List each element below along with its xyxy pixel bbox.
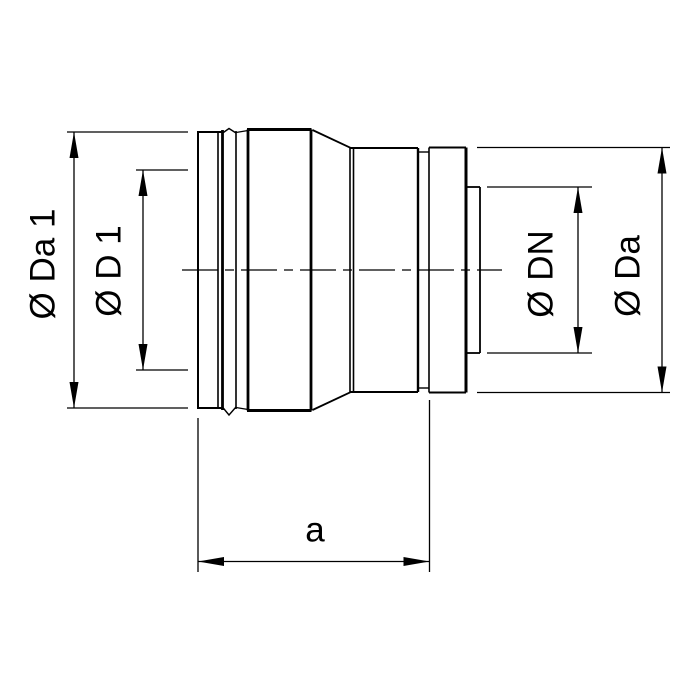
da-arrow-down-icon: [658, 367, 667, 393]
d1-arrow-up-icon: [139, 170, 148, 196]
dimension-dn: Ø DN: [487, 187, 592, 353]
fitting-body: [182, 129, 502, 416]
dimension-da: Ø Da: [477, 148, 670, 393]
gasket-chamfer-top: [222, 129, 236, 134]
groove-bottom-edge: [236, 408, 248, 410]
d1-label: Ø D 1: [90, 225, 129, 316]
a-label: a: [305, 511, 325, 550]
dimension-a: a: [198, 400, 430, 572]
d1-arrow-down-icon: [139, 344, 148, 370]
a-arrow-right-icon: [404, 557, 430, 566]
cone-top-slope: [313, 130, 351, 148]
da-arrow-up-icon: [658, 148, 667, 174]
dn-arrow-up-icon: [574, 187, 583, 213]
socket-bell-end: [197, 129, 312, 416]
dimension-d1: Ø D 1: [90, 170, 189, 370]
gasket-chamfer-bottom: [222, 407, 236, 416]
groove-top-edge: [236, 131, 248, 133]
drawing-canvas: Ø Da 1 Ø D 1 Ø DN Ø Da a: [0, 0, 700, 700]
da1-arrow-down-icon: [70, 382, 79, 408]
da1-label: Ø Da 1: [24, 209, 63, 320]
reducer-fitting-drawing: Ø Da 1 Ø D 1 Ø DN Ø Da a: [0, 0, 700, 700]
a-arrow-left-icon: [198, 557, 224, 566]
da-label: Ø Da: [609, 235, 648, 317]
da1-arrow-up-icon: [70, 132, 79, 158]
cone-bottom-slope: [313, 392, 351, 410]
dn-arrow-down-icon: [574, 327, 583, 353]
dn-label: Ø DN: [522, 230, 561, 318]
